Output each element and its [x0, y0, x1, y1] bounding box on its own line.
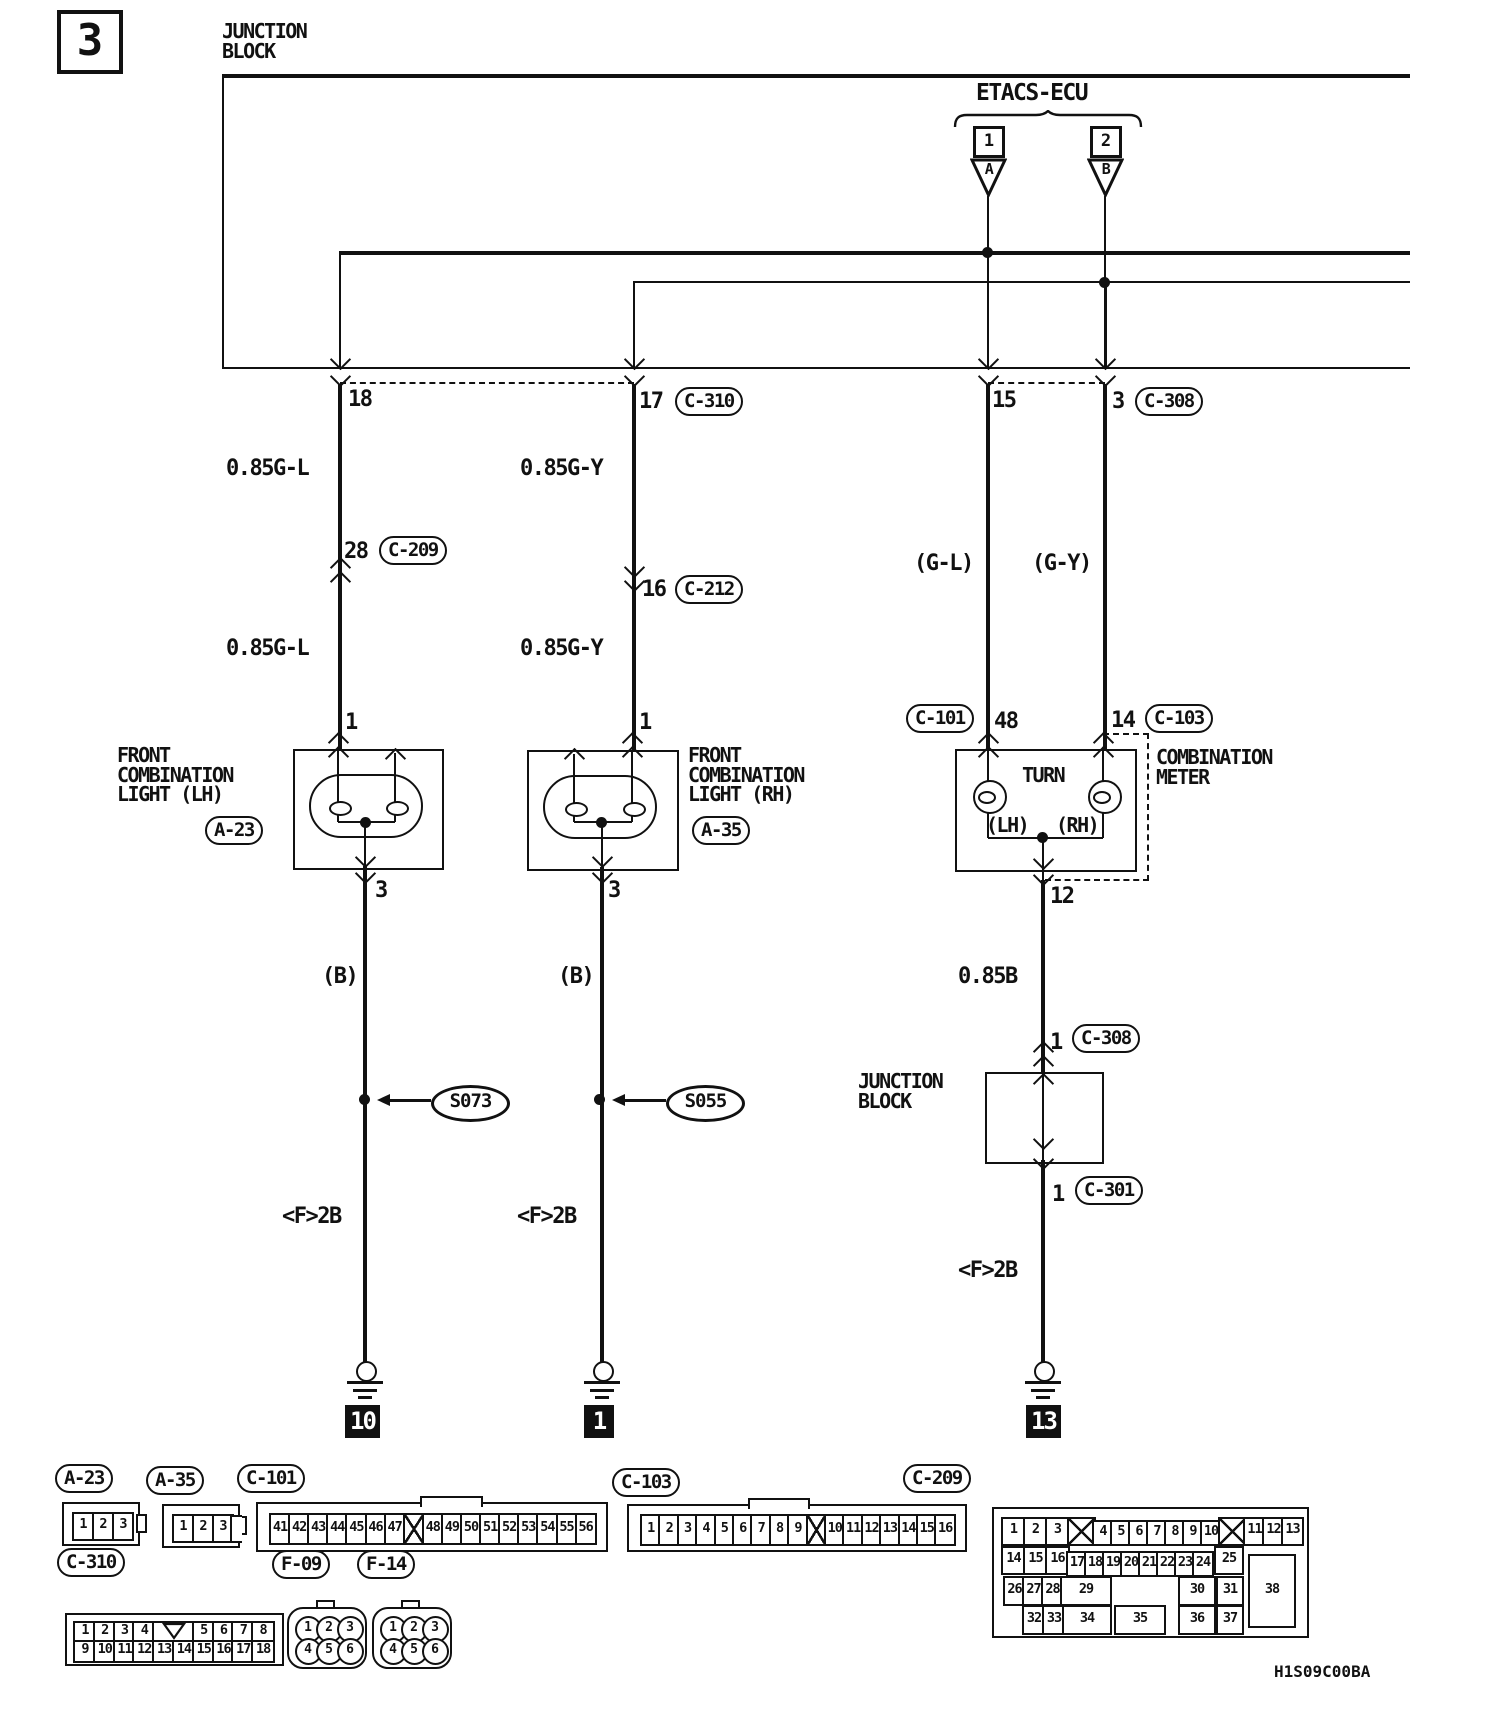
connector-label-f09: F-09 [272, 1550, 330, 1579]
pin-1-c301: 1 [1052, 1182, 1064, 1207]
pin-cell: 13 [1281, 1517, 1304, 1546]
wire-size-085b: 0.85B [958, 964, 1017, 989]
wire-f2b-meter: <F>2B [958, 1258, 1017, 1283]
pin-15: 15 [992, 388, 1016, 413]
pin-cell: 1 [172, 1514, 194, 1543]
pin-cell: 25 [1214, 1546, 1244, 1575]
pin-cell: 2 [92, 1512, 114, 1541]
front-light-rh-line3: LIGHT (RH) [688, 782, 793, 806]
connector-notch [748, 1498, 809, 1509]
ground-bar [358, 1396, 372, 1399]
ground-number-13: 13 [1026, 1405, 1061, 1438]
pin-3-rh: 3 [608, 878, 620, 903]
connector-ref-c103: C-103 [1145, 704, 1213, 733]
etacs-pin1-box: 1 [973, 126, 1005, 158]
meter-dash-right [1147, 733, 1149, 881]
wire-f2b-lh: <F>2B [282, 1204, 341, 1229]
sheet-number-box: 3 [57, 10, 123, 74]
wire-color-b-lh: (B) [322, 964, 357, 989]
ground-icon [1034, 1361, 1055, 1382]
pin-cell: 34 [1062, 1605, 1112, 1635]
connector-c310: 123456789101112131415161718 [65, 1613, 284, 1666]
connector-c101-tab [230, 1515, 242, 1543]
pin-cell: 35 [1114, 1605, 1166, 1635]
pin-cell: 3 [112, 1512, 134, 1541]
pin-12: 12 [1050, 884, 1074, 909]
junction-block-label: JUNCTION BLOCK [222, 22, 306, 61]
connector-ref-a35: A-35 [692, 816, 750, 845]
pin-cell: 2 [192, 1514, 214, 1543]
connector-ref-c101: C-101 [906, 704, 974, 733]
pin-48: 48 [994, 709, 1018, 734]
connector-label-f14: F-14 [357, 1550, 415, 1579]
pin-cell: 38 [1248, 1554, 1296, 1628]
connector-label-c310: C-310 [57, 1548, 125, 1577]
bus-wire-thin [634, 281, 1410, 283]
triangle-b-letter: B [1087, 160, 1124, 178]
wire-size-gy-2: 0.85G-Y [520, 636, 602, 661]
front-light-lh-label: FRONT COMBINATION LIGHT (LH) [117, 746, 233, 805]
ground-bar [595, 1396, 609, 1399]
wire-meter-l-main [986, 384, 990, 750]
splice-s073: S073 [431, 1085, 510, 1122]
bus-junction-dot-a [982, 247, 993, 258]
indicator-bulb-lh-icon [973, 780, 1007, 814]
connector-c103: 12345678910111213141516 [627, 1504, 967, 1552]
junction-block-bottom-edge [222, 367, 1410, 369]
connector-label-a23: A-23 [55, 1464, 113, 1493]
combination-meter-label: COMBINATION METER [1156, 748, 1272, 787]
connector-ref-c310: C-310 [675, 387, 743, 416]
splice-arrow-line [389, 1099, 431, 1102]
ground-number-1: 1 [584, 1405, 614, 1438]
front-light-lh-line3: LIGHT (LH) [117, 782, 222, 806]
junction-block-left-edge [222, 74, 224, 369]
bus-junction-dot-b [1099, 277, 1110, 288]
wire-size-gl-2: 0.85G-L [226, 636, 308, 661]
bus-wire-thick [340, 251, 1410, 255]
page-code: H1S09C00BA [1274, 1662, 1370, 1681]
pin-1-rh: 1 [639, 710, 651, 735]
ground-bar [347, 1381, 383, 1384]
pin-cell: 56 [575, 1513, 597, 1545]
wire-size-gy-1: 0.85G-Y [520, 456, 602, 481]
splice-s055: S055 [666, 1085, 745, 1122]
ground-icon [593, 1361, 614, 1382]
meter-rh-label: (RH) [1056, 813, 1098, 837]
triangle-a-letter: A [970, 160, 1007, 178]
connector-row-dash-right [988, 382, 1105, 384]
wire-etacs-b1 [1104, 196, 1106, 282]
combination-meter-line2: METER [1156, 765, 1209, 789]
pin-cell: 29 [1060, 1576, 1112, 1606]
pin-circle: 6 [422, 1638, 449, 1665]
indicator-bulb-rh-icon [1088, 780, 1122, 814]
filament-icon [329, 801, 352, 816]
ground-bar [1025, 1381, 1061, 1384]
pin-16: 16 [642, 577, 666, 602]
meter-ground-wire [1041, 1160, 1045, 1362]
filament-icon [386, 801, 409, 816]
pin-3-lh: 3 [375, 878, 387, 903]
pin-cell: 16 [934, 1514, 956, 1546]
pin-cell: 30 [1178, 1576, 1216, 1606]
wire-meter-r-main [1103, 384, 1107, 750]
pin-14: 14 [1111, 708, 1135, 733]
pin-cell: 1 [72, 1512, 94, 1541]
ground-icon [356, 1361, 377, 1382]
connector-label-c209: C-209 [903, 1464, 971, 1493]
connector-ref-c301: C-301 [1075, 1176, 1143, 1205]
wire-color-b-rh: (B) [558, 964, 593, 989]
connector-notch [420, 1496, 483, 1507]
wiring-diagram-page: 3 JUNCTION BLOCK ETACS-ECU 1 2 A B 18 [0, 0, 1504, 1714]
connector-ref-c212: C-212 [675, 575, 743, 604]
splice-dot-s073 [359, 1094, 370, 1105]
pin-cell: 36 [1178, 1605, 1216, 1635]
pin-18: 18 [348, 387, 372, 412]
pin-3: 3 [1112, 389, 1124, 414]
pin-cell: 18 [251, 1640, 275, 1663]
wire-f2b-rh: <F>2B [517, 1204, 576, 1229]
connector-label-c103: C-103 [612, 1468, 680, 1497]
wire-etacs-a [987, 196, 989, 368]
connector-ref-c308: C-308 [1135, 387, 1203, 416]
pin-28: 28 [344, 539, 368, 564]
ground-bar [1036, 1396, 1050, 1399]
etacs-pin2-box: 2 [1090, 126, 1122, 158]
ground-bar [353, 1389, 377, 1392]
connector-a23-tab [136, 1514, 147, 1533]
arrow-up-icon [330, 571, 351, 592]
pin-cell: 31 [1216, 1576, 1244, 1606]
meter-dash-bottom [1045, 879, 1149, 881]
ground-bar [584, 1381, 620, 1384]
connector-ref-a23: A-23 [205, 816, 263, 845]
connector-c209: 1234567891011121314151617181920212223242… [992, 1507, 1309, 1638]
pin-cell: 24 [1192, 1551, 1214, 1577]
wire-size-gl-1: 0.85G-L [226, 456, 308, 481]
wire-color-gl: (G-L) [914, 551, 973, 576]
junction-block-top-edge [222, 74, 1410, 78]
ground-bar [590, 1389, 614, 1392]
pin-1-lh: 1 [345, 710, 357, 735]
pin-cell: 37 [1216, 1605, 1244, 1635]
ground-bar [1031, 1389, 1055, 1392]
filament-icon [565, 802, 588, 817]
meter-lh-label: (LH) [986, 813, 1028, 837]
connector-f14: 123456 [372, 1607, 452, 1669]
meter-dash-top [1103, 733, 1149, 735]
front-light-rh-label: FRONT COMBINATION LIGHT (RH) [688, 746, 804, 805]
pin-circle: 6 [337, 1638, 364, 1665]
turn-label: TURN [1022, 763, 1064, 787]
connector-a35: 123 [162, 1504, 240, 1548]
junction-block-line2: BLOCK [222, 39, 275, 63]
connector-ref-c209: C-209 [379, 536, 447, 565]
wire-color-gy: (G-Y) [1032, 551, 1091, 576]
filament-icon [623, 802, 646, 817]
splice-arrow-line [624, 1099, 666, 1102]
connector-c101: 41424344454647484950515253545556 [256, 1502, 608, 1552]
splice-dot-s055 [594, 1094, 605, 1105]
junction-block-2-label: JUNCTION BLOCK [858, 1072, 942, 1111]
etacs-ecu-label: ETACS-ECU [976, 80, 1087, 106]
connector-label-a35: A-35 [146, 1466, 204, 1495]
connector-label-c101: C-101 [237, 1464, 305, 1493]
ground-number-10: 10 [345, 1405, 380, 1438]
pin-17: 17 [639, 389, 663, 414]
connector-a23: 123 [62, 1502, 140, 1546]
connector-row-dash-left [340, 382, 634, 384]
connector-ref-c308-2: C-308 [1072, 1024, 1140, 1053]
connector-f09: 123456 [287, 1607, 367, 1669]
lh-ground-wire [363, 866, 367, 1362]
junction-block-2-line2: BLOCK [858, 1089, 911, 1113]
rh-ground-wire [600, 867, 604, 1362]
